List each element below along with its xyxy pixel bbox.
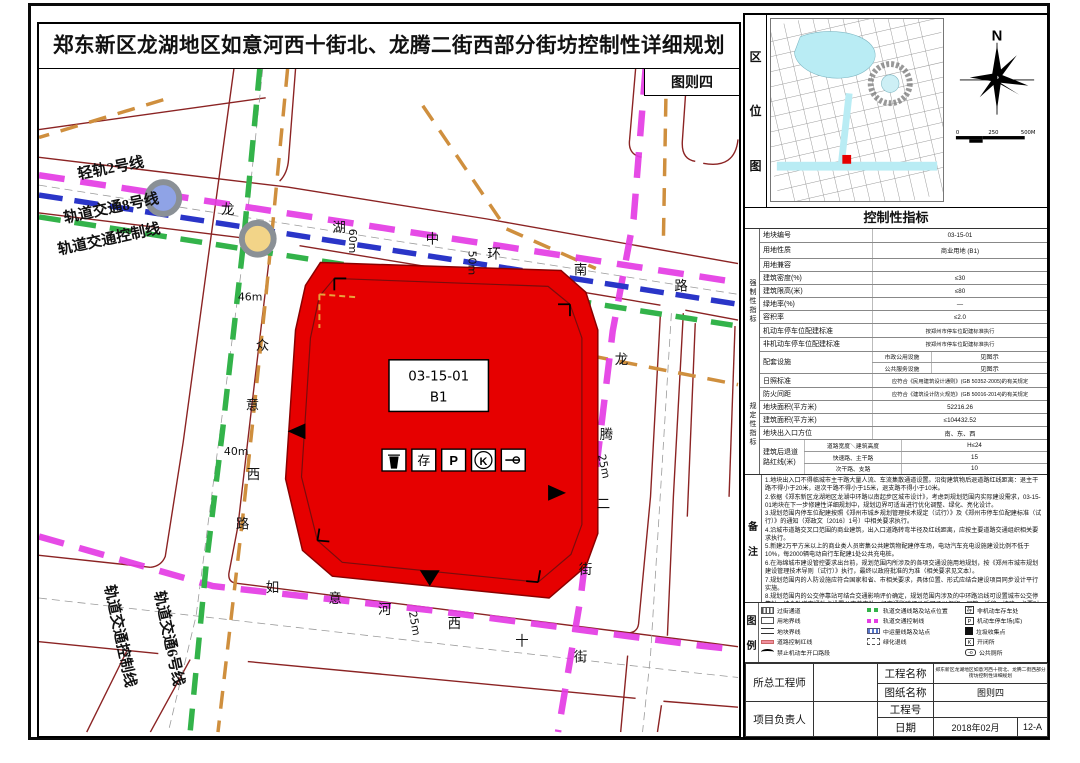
- svg-text:路: 路: [674, 278, 688, 293]
- label-light-rail-2: 轻轨2号线: [76, 153, 145, 183]
- table-row: 非机动车停车位配建标准按郑州市停车位配建标准执行: [760, 338, 1047, 352]
- no-curb-cut-swatch: [761, 649, 774, 655]
- legend-item: 禁止机动车开口路段: [761, 648, 867, 657]
- legend-item: P机动车停车场(库): [965, 616, 1045, 625]
- legend-item: 道路控制红线: [761, 637, 867, 646]
- location-minimap: [767, 15, 947, 207]
- note-item: 5.新建2万平方米以上的商业类人员密集公共建筑物配建停车场，电动汽车充电设施建设…: [765, 543, 1044, 559]
- svg-text:意: 意: [328, 590, 341, 606]
- notes-label: 备 注: [745, 475, 762, 602]
- svg-text:0: 0: [956, 130, 959, 136]
- parcel-label: 03-15-01 B1: [389, 360, 488, 412]
- land-boundary-swatch: [761, 617, 774, 624]
- svg-text:南: 南: [574, 262, 587, 277]
- svg-text:西: 西: [448, 616, 461, 631]
- legend-item: 中运量线路及站点: [867, 627, 965, 636]
- right-panel: 区 位 图: [743, 13, 1049, 739]
- svg-text:十: 十: [515, 634, 528, 649]
- legend-section: 图 例 过街通道 用地界线 地块界线 道路控制红线 禁止机动车开口路段 ▼机动车…: [745, 603, 1047, 663]
- location-label: 区 位 图: [745, 15, 767, 207]
- legend-item: K开闭所: [965, 637, 1045, 646]
- scale-bar: 0 250 500M: [954, 127, 1040, 147]
- title-block: 所总工程师 工程名称 郑东新区龙湖地区如意河西十街北、龙腾二街西部分街坊控制性详…: [745, 663, 1047, 737]
- location-label-char: 区: [749, 48, 761, 65]
- note-item: 4.沿城市道路交叉口范围的商业建筑，出入口道路转弯半径及红线距离，应按主要道路交…: [765, 527, 1044, 543]
- legend-item: 垃圾收集点: [965, 627, 1045, 636]
- table-row: 日照标准应符合《民用建筑设计通则》(GB 50352-2005)的有关规定: [760, 374, 1047, 387]
- page-title: 郑东新区龙湖地区如意河西十街北、龙腾二街西部分街坊控制性详细规划: [39, 24, 739, 69]
- trash-swatch: [965, 627, 973, 635]
- label-metro-6: 轨道交通6号线: [150, 589, 188, 687]
- svg-text:街: 街: [574, 650, 587, 665]
- table-row: 地块面积(平方米)52216.26: [760, 401, 1047, 414]
- legend-item: 过街通道: [761, 606, 867, 615]
- location-label-char: 位: [749, 102, 761, 119]
- parking-icon: P: [449, 453, 458, 468]
- svg-text:西: 西: [247, 467, 260, 482]
- note-item: 1.地块出入口不得临城市主干路大量人流、车流集散通道设置。沿街建筑物后退道路红线…: [765, 477, 1044, 493]
- sheet-border: 郑东新区龙湖地区如意河西十街北、龙腾二街西部分街坊控制性详细规划 图则四: [28, 3, 1050, 740]
- switch-station-swatch: K: [965, 638, 974, 646]
- medium-transit-swatch: [867, 628, 880, 634]
- bicycle-storage-icon: 存: [417, 453, 430, 468]
- road-redline-swatch: [761, 640, 774, 644]
- note-item: 2.依据《郑东新区龙湖地区龙湖中环路以南起步区城市设计》，考虑到规划范围内实际建…: [765, 494, 1044, 510]
- location-label-char: 图: [749, 157, 761, 174]
- legend-item: -o公共厕所: [965, 648, 1045, 657]
- chief-engineer-signature[interactable]: [814, 664, 878, 702]
- svg-text:60m: 60m: [346, 229, 359, 253]
- table-row: 建筑限高(米)≤80: [760, 285, 1047, 298]
- table-row-facilities: 配套设施 市政公用设施见图示 公共服务设施见图示: [760, 352, 1047, 375]
- green-setback-swatch: [867, 638, 880, 645]
- svg-text:湖: 湖: [332, 220, 345, 235]
- plan-map[interactable]: 03-15-01 B1 存 P K: [39, 69, 739, 735]
- svg-text:中: 中: [426, 232, 439, 247]
- svg-text:意: 意: [246, 396, 259, 412]
- legend-item: 用地界线: [761, 616, 867, 625]
- legend-col-1: 过街通道 用地界线 地块界线 道路控制红线 禁止机动车开口路段 ▼机动车出入口方…: [761, 606, 867, 659]
- crosswalk-swatch: [761, 607, 774, 614]
- legend-item: ▼机动车出入口方位: [761, 658, 867, 659]
- rail-control-swatch: [867, 619, 880, 623]
- rail-labels: 轻轨2号线 轨道交通8号线 轨道交通控制线 轨道交通控制线 轨道交通6号线: [56, 153, 188, 689]
- project-manager-label: 项目负责人: [746, 702, 814, 737]
- svg-text:二: 二: [597, 497, 610, 512]
- table-row: 容积率≤2.0: [760, 311, 1047, 324]
- parcel-use-code: B1: [430, 391, 448, 406]
- table-row: 用地性质商业用地 (B1): [760, 243, 1047, 259]
- svg-text:环: 环: [487, 247, 500, 262]
- legend-label-char: 图: [747, 612, 757, 627]
- project-manager-signature[interactable]: [814, 702, 878, 737]
- legend-col-3: 存非机动车存车处 P机动车停车场(库) 垃圾收集点 K开闭所 -o公共厕所: [965, 606, 1045, 659]
- table-row: 绿地率(%)—: [760, 298, 1047, 311]
- label-rail-control-sw: 轨道交通控制线: [101, 583, 140, 689]
- svg-text:25m: 25m: [406, 610, 423, 636]
- rail-station-yellow: [242, 223, 274, 255]
- compass-rose-icon: N: [954, 23, 1040, 127]
- legend-label: 图 例: [745, 603, 759, 662]
- facility-icons: 存 P K: [382, 449, 525, 471]
- project-name-value: 郑东新区龙湖地区如意河西十街北、龙腾二街西部分街坊控制性详细规划: [934, 664, 1048, 684]
- project-name-label: 工程名称: [878, 664, 934, 684]
- sheet-number-box: 图则四: [644, 69, 739, 96]
- notes-label-char: 备: [748, 518, 758, 533]
- table-row: 用地兼容: [760, 259, 1047, 272]
- project-no-value: [934, 702, 1048, 718]
- svg-text:46m: 46m: [238, 290, 263, 303]
- legend-col-2: 轨道交通线路及站点位置 轨道交通控制线 中运量线路及站点 绿化退线: [867, 606, 965, 659]
- page-number: 12-A: [1018, 718, 1048, 737]
- parcel-03-15-01[interactable]: [286, 263, 598, 598]
- indicators-table: 强制性指标 地块编号03-15-01 用地性质商业用地 (B1) 用地兼容 建筑…: [745, 229, 1047, 475]
- notes-section: 备 注 1.地块出入口不得临城市主干路大量人流、车流集散通道设置。沿街建筑物后退…: [745, 475, 1047, 603]
- table-row: 地块编号03-15-01: [760, 229, 1047, 243]
- svg-text:路: 路: [236, 517, 250, 532]
- map-area: 图则四: [39, 69, 739, 735]
- parcel-boundary-swatch: [761, 628, 774, 634]
- project-no-label: 工程号: [878, 702, 934, 718]
- bicycle-storage-swatch: 存: [965, 606, 974, 614]
- switch-station-icon: K: [480, 456, 488, 468]
- svg-text:河: 河: [378, 602, 391, 617]
- parking-swatch: P: [965, 617, 974, 625]
- svg-text:50m: 50m: [466, 251, 479, 275]
- date-label: 日期: [878, 718, 934, 737]
- legend-item: 存非机动车存车处: [965, 606, 1045, 615]
- svg-text:40m: 40m: [224, 445, 249, 458]
- svg-text:N: N: [992, 28, 1003, 44]
- indicators-header: 控制性指标: [745, 208, 1047, 229]
- parcel-code: 03-15-01: [408, 370, 469, 385]
- svg-text:龙: 龙: [221, 202, 234, 217]
- svg-text:龙: 龙: [615, 352, 628, 367]
- group-prescriptive-label: 规定性指标: [745, 374, 760, 474]
- map-frame: 郑东新区龙湖地区如意河西十街北、龙腾二街西部分街坊控制性详细规划 图则四: [37, 22, 741, 738]
- table-row: 建筑密度(%)≤30: [760, 272, 1047, 285]
- rail-line-swatch: [867, 608, 880, 612]
- table-row: 防火间距应符合《建筑设计防火规范》(GB 50016-2014)的有关规定: [760, 388, 1047, 401]
- table-row: 机动车停车位配建标准按郑州市停车位配建标准执行: [760, 324, 1047, 338]
- note-item: 7.规划范围内的人防设施应符合国家和省、市相关要求，具体位置、形式应结合建设项目…: [765, 577, 1044, 593]
- svg-text:250: 250: [988, 130, 998, 136]
- svg-text:腾: 腾: [600, 426, 614, 442]
- chief-engineer-label: 所总工程师: [746, 664, 814, 702]
- toilet-swatch: -o: [965, 649, 976, 656]
- note-item: 3.规划范围内停车位配建按照《郑州市城乡规划管理技术规定（试行）》及《郑州市停车…: [765, 510, 1044, 526]
- sheet-name-value: 图则四: [934, 684, 1048, 702]
- svg-text:街: 街: [579, 562, 592, 577]
- legend-label-char: 例: [747, 637, 757, 652]
- svg-text:众: 众: [256, 338, 269, 353]
- note-item: 8.规划范围内的公交停靠站可结合交通影响评价确定，规划范围内涉及的中环路沿线可设…: [765, 593, 1044, 602]
- legend-item: 绿化退线: [867, 637, 965, 646]
- plan-sheet: 郑东新区龙湖地区如意河西十街北、龙腾二街西部分街坊控制性详细规划 图则四: [0, 0, 1080, 763]
- sheet-name-label: 图纸名称: [878, 684, 934, 702]
- table-row: 建筑面积(平方米)≤104432.52: [760, 414, 1047, 427]
- notes-text: 1.地块出入口不得临城市主干路大量人流、车流集散通道设置。沿街建筑物后退道路红线…: [762, 475, 1047, 602]
- notes-label-char: 注: [748, 543, 758, 558]
- compass-scale-column: N 0 250 500M: [947, 15, 1047, 207]
- table-row-setback: 建筑后退道路红线(米) 道路宽度＼建筑高度H≤24 快速路、主干路15 次干路、…: [760, 440, 1047, 474]
- svg-text:如: 如: [266, 580, 279, 595]
- date-value: 2018年02月: [934, 718, 1018, 737]
- legend-item: 地块界线: [761, 627, 867, 636]
- group-mandatory-label: 强制性指标: [745, 229, 760, 374]
- legend-item: 轨道交通控制线: [867, 616, 965, 625]
- note-item: 6.在海绵城市建设管控要求出台前，规划范围内所涉及的各项交通设施用地规划，按《郑…: [765, 560, 1044, 576]
- svg-text:500M: 500M: [1021, 130, 1036, 136]
- table-row: 地块出入口方位南、东、西: [760, 427, 1047, 440]
- site-marker: [842, 155, 851, 164]
- legend-item: 轨道交通线路及站点位置: [867, 606, 965, 615]
- location-section: 区 位 图: [745, 15, 1047, 208]
